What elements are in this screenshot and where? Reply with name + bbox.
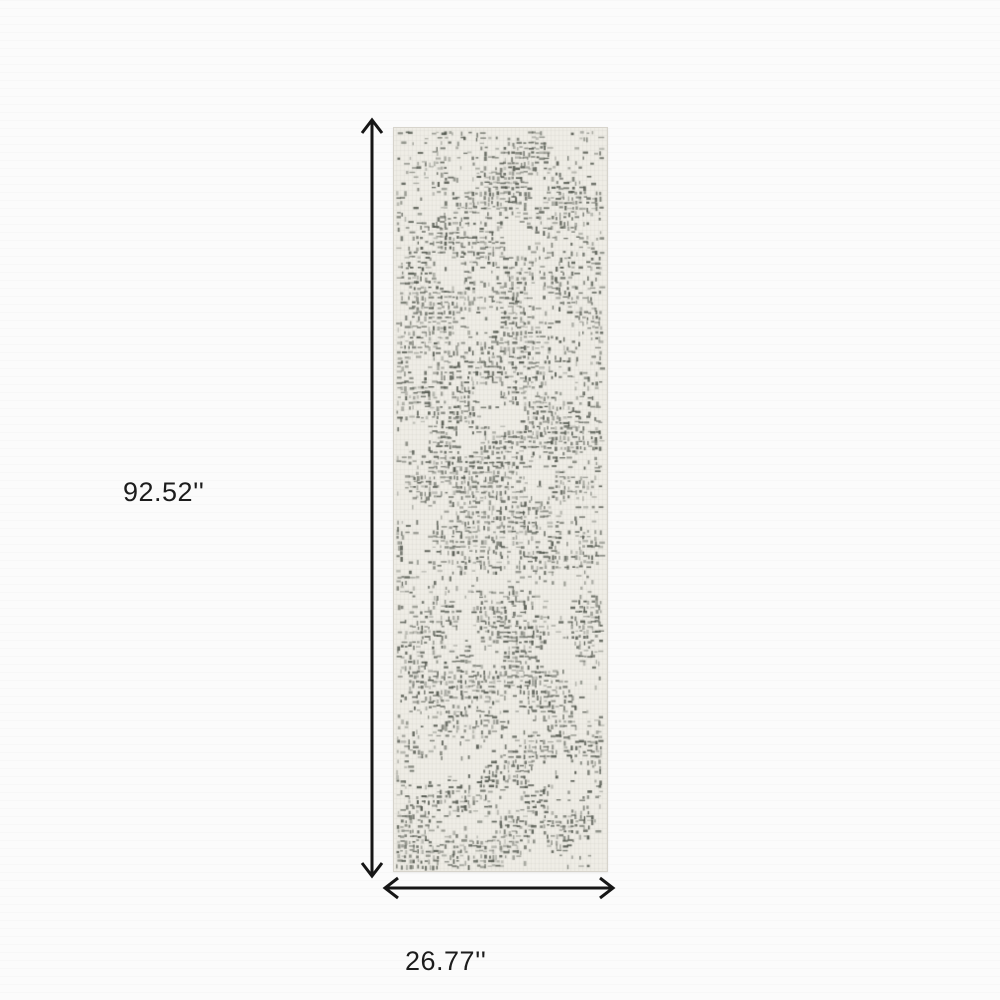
arrowhead-right-icon (600, 878, 613, 898)
width-dimension-arrow (379, 875, 619, 901)
rug-image (393, 127, 608, 872)
height-label: 92.52'' (123, 479, 204, 506)
arrowhead-left-icon (385, 878, 398, 898)
arrowhead-down-icon (362, 863, 382, 876)
height-dimension-arrow (358, 112, 386, 882)
arrowhead-up-icon (362, 120, 382, 133)
width-label: 26.77'' (405, 948, 486, 975)
rug-texture (394, 128, 607, 871)
dimension-diagram: 92.52'' 26.77'' (0, 0, 1000, 1000)
